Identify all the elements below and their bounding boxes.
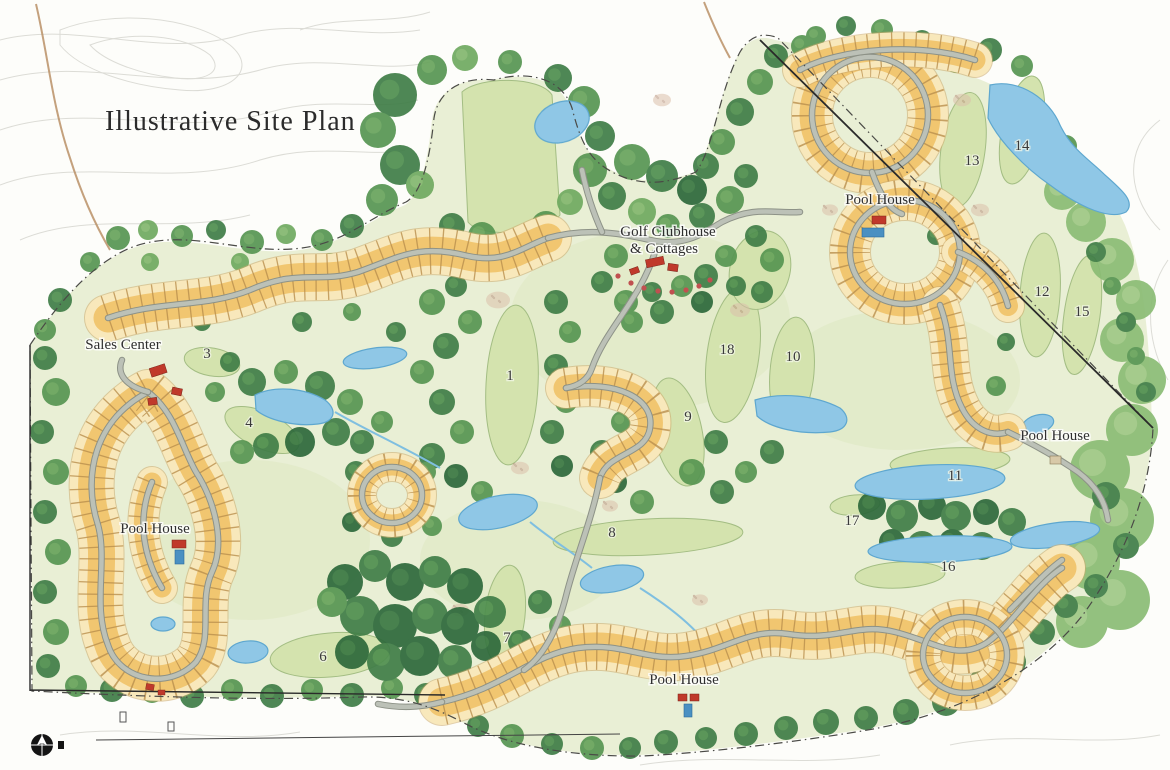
label-golf-clubhouse-line2: & Cottages	[630, 241, 698, 257]
page-title: Illustrative Site Plan	[105, 106, 356, 137]
pool-house-east-building	[1050, 456, 1061, 464]
hole-number-4: 4	[245, 415, 253, 431]
hole-number-17: 17	[845, 513, 861, 529]
hole-number-3: 3	[203, 346, 211, 362]
hole-number-12: 12	[1035, 284, 1050, 300]
label-pool-house-south: Pool House	[649, 672, 719, 688]
hole-number-13: 13	[965, 153, 980, 169]
label-sales-center: Sales Center	[85, 337, 160, 353]
hole-number-11: 11	[948, 468, 962, 484]
label-pool-house-east: Pool House	[1020, 428, 1090, 444]
hole-number-1: 1	[506, 368, 514, 384]
label-golf-clubhouse-line1: Golf Clubhouse	[620, 224, 716, 240]
hole-number-6: 6	[319, 649, 327, 665]
hole-number-18: 18	[720, 342, 735, 358]
hole-number-15: 15	[1075, 304, 1090, 320]
hole-number-7: 7	[503, 630, 511, 646]
hole-number-16: 16	[941, 559, 957, 575]
hole-number-8: 8	[608, 525, 616, 541]
site-plan-map: Illustrative Site Plan Golf Clubhouse & …	[0, 0, 1170, 770]
hole-number-14: 14	[1015, 138, 1031, 154]
label-pool-house-ne: Pool House	[845, 192, 915, 208]
hole-number-10: 10	[786, 349, 801, 365]
hole-number-9: 9	[684, 409, 692, 425]
illustrative-site-plan: Illustrative Site Plan Golf Clubhouse & …	[0, 0, 1170, 770]
label-pool-house-west: Pool House	[120, 521, 190, 537]
